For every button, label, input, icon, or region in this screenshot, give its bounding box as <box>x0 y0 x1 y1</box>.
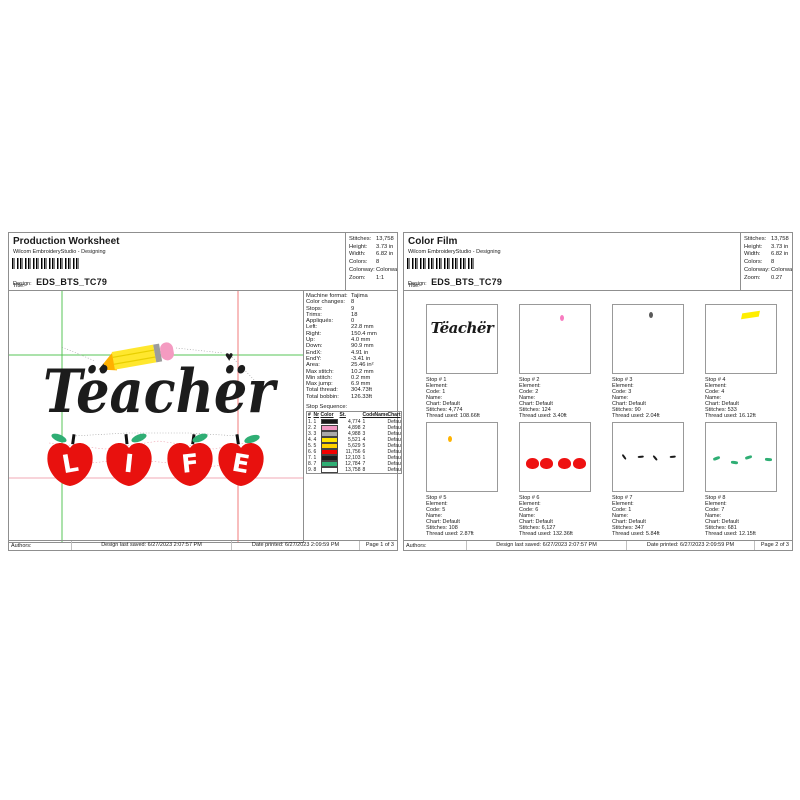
design-name-line: Design: EDS_BTS_TC79 <box>408 272 502 290</box>
stem-mark-mini <box>652 455 657 460</box>
stat-label: Width: <box>744 251 771 259</box>
production-worksheet-page: Production Worksheet Wilcom EmbroiderySt… <box>8 232 398 551</box>
color-film-footer: Authors:Design last saved: 6/27/2023 2:0… <box>404 540 792 550</box>
stop-chart: Default <box>387 425 402 431</box>
stat-value: 8 <box>771 259 774 267</box>
apple-mini <box>526 458 539 469</box>
film-cell: Stop # 7Element:Code: 1Name:Chart: Defau… <box>612 422 684 537</box>
machine-info-list: Machine format:TajimaColor changes:8Stop… <box>306 293 396 400</box>
stop-table-header: Color <box>320 412 339 419</box>
stat-value: 13,758 <box>376 236 394 244</box>
stat-label: Colors: <box>349 259 376 267</box>
machine-info-value: 18 <box>351 312 357 318</box>
stop-chart: Default <box>387 431 402 437</box>
stop-details: Stop # 7Element:Code: 1Name:Chart: Defau… <box>612 495 684 537</box>
design-name-value: EDS_BTS_TC79 <box>36 277 107 287</box>
stat-value: Colorway 1 <box>376 267 397 275</box>
stat-row: Stitches:13,758 <box>349 236 397 244</box>
stop-num: 2. <box>307 425 313 431</box>
teacher-word: Tëachër <box>43 357 279 427</box>
color-film-grid: TëachërStop # 1Element:Code: 1Name:Chart… <box>404 291 792 541</box>
barcode-image <box>407 258 475 269</box>
film-cell: Stop # 3Element:Code: 3Name:Chart: Defau… <box>612 304 684 419</box>
stop-color-cell <box>320 467 339 474</box>
stat-value: 6.82 in <box>376 251 393 259</box>
pencil-body-mini <box>741 311 760 320</box>
stop-chart: Default <box>387 467 402 474</box>
machine-info-value: 8 <box>351 299 354 305</box>
stat-row: Stitches:13,758 <box>744 236 792 244</box>
machine-info-value: 150.4 mm <box>351 331 377 337</box>
leaf-mark-mini <box>765 458 772 461</box>
worksheet-footer: Authors:Design last saved: 6/27/2023 2:0… <box>9 540 397 550</box>
stitch-dot <box>560 315 564 321</box>
leaf-mark-mini <box>744 455 751 459</box>
stop-table-header-row: #NrColorSt.CodeNameChart <box>307 412 402 419</box>
stop-num: 1. <box>307 419 313 425</box>
stop-detail-line: Thread used: 108.66ft <box>426 413 498 419</box>
stop-detail-line: Thread used: 5.84ft <box>612 531 684 537</box>
stop-num: 3. <box>307 431 313 437</box>
worksheet-header: Production Worksheet Wilcom EmbroiderySt… <box>9 233 397 291</box>
film-cell: Stop # 4Element:Code: 4Name:Chart: Defau… <box>705 304 777 419</box>
stop-thumbnail <box>426 422 498 492</box>
stop-num: 9. <box>307 467 313 474</box>
title-label: Title: <box>408 283 420 289</box>
mini-teacher-word: Tëachër <box>427 319 497 337</box>
machine-info-value: 9 <box>351 306 354 312</box>
stop-details: Stop # 6Element:Code: 6Name:Chart: Defau… <box>519 495 591 537</box>
apple-mini <box>558 458 571 469</box>
stop-detail-line: Thread used: 2.87ft <box>426 531 498 537</box>
stat-row: Zoom:0.27 <box>744 275 792 283</box>
machine-info-value: 304.73ft <box>351 387 372 393</box>
stat-label: Zoom: <box>744 275 771 283</box>
stat-value: 8 <box>376 259 379 267</box>
stem-mark-mini <box>670 456 676 458</box>
thread-color-swatch <box>321 461 338 467</box>
barcode-image <box>12 258 80 269</box>
stop-chart: Default <box>387 419 402 425</box>
stat-value: 0.27 <box>771 275 782 283</box>
stop-detail-line: Thread used: 3.40ft <box>519 413 591 419</box>
thread-color-swatch <box>321 437 338 443</box>
embroidery-design-preview: ♥ Tëachër L I <box>9 291 303 542</box>
stop-table-header: Nr <box>313 412 320 419</box>
stop-thumbnail <box>705 304 777 374</box>
stat-row: Height:3.73 in <box>744 244 792 252</box>
film-cell: Stop # 8Element:Code: 7Name:Chart: Defau… <box>705 422 777 537</box>
machine-info-value: -3.41 in <box>351 356 370 362</box>
stop-thumbnail <box>519 304 591 374</box>
machine-info-value: Tajima <box>351 293 368 299</box>
stop-table-header: Code <box>362 412 374 419</box>
footer-last-saved: Design last saved: 6/27/2023 2:07:57 PM <box>71 541 231 550</box>
stem-mark-mini <box>638 455 644 457</box>
machine-info-row: Total bobbin:126.33ft <box>306 394 396 400</box>
stat-row: Width:6.82 in <box>349 251 397 259</box>
stop-thumbnail <box>612 422 684 492</box>
stop-details: Stop # 8Element:Code: 7Name:Chart: Defau… <box>705 495 777 537</box>
stop-details: Stop # 1Element:Code: 1Name:Chart: Defau… <box>426 377 498 419</box>
footer-date-printed: Date printed: 6/27/2023 2:09:59 PM <box>231 541 359 550</box>
machine-info-value: 126.33ft <box>351 394 372 400</box>
stop-details: Stop # 3Element:Code: 3Name:Chart: Defau… <box>612 377 684 419</box>
stat-label: Height: <box>744 244 771 252</box>
machine-info-value: 4.0 mm <box>351 337 370 343</box>
stat-row: Zoom:1:1 <box>349 275 397 283</box>
stop-detail-line: Thread used: 2.04ft <box>612 413 684 419</box>
stop-table-header: Chart <box>387 412 402 419</box>
machine-info-value: 4.91 in <box>351 350 368 356</box>
machine-info-value: 25.46 in² <box>351 362 374 368</box>
stat-value: 13,758 <box>771 236 789 244</box>
stat-row: Colorway:Colorway 1 <box>744 267 792 275</box>
stop-detail-line: Thread used: 12.15ft <box>705 531 777 537</box>
stop-sequence-label: Stop Sequence: <box>306 404 396 410</box>
thread-color-swatch <box>321 455 338 461</box>
stem-mark-mini <box>621 454 626 460</box>
page-title: Color Film <box>408 236 457 247</box>
stat-row: Colors:8 <box>744 259 792 267</box>
stat-value: 6.82 in <box>771 251 788 259</box>
stop-stitches: 13,758 <box>339 467 362 474</box>
stat-label: Stitches: <box>349 236 376 244</box>
stitch-dot <box>448 436 452 442</box>
design-stats-box: Stitches:13,758Height:3.73 inWidth:6.82 … <box>740 233 792 290</box>
app-subtitle: Wilcom EmbroideryStudio - Designing <box>13 249 106 255</box>
design-name-value: EDS_BTS_TC79 <box>431 277 502 287</box>
footer-authors: Authors: <box>9 543 71 549</box>
stop-code: 8 <box>362 467 374 474</box>
color-film-page: Color Film Wilcom EmbroideryStudio - Des… <box>403 232 793 551</box>
stat-value: 3.73 in <box>771 244 788 252</box>
footer-last-saved: Design last saved: 6/27/2023 2:07:57 PM <box>466 541 626 550</box>
film-cell: Stop # 2Element:Code: 2Name:Chart: Defau… <box>519 304 591 419</box>
stat-label: Colorway: <box>744 267 771 275</box>
footer-page-number: Page 2 of 3 <box>754 541 792 550</box>
footer-page-number: Page 1 of 3 <box>359 541 397 550</box>
stat-label: Colorway: <box>349 267 376 275</box>
stop-detail-line: Thread used: 16.12ft <box>705 413 777 419</box>
thread-color-swatch <box>321 419 338 425</box>
machine-info-value: 0 <box>351 318 354 324</box>
thread-color-swatch <box>321 425 338 431</box>
stop-details: Stop # 5Element:Code: 5Name:Chart: Defau… <box>426 495 498 537</box>
film-cell: Stop # 6Element:Code: 6Name:Chart: Defau… <box>519 422 591 537</box>
machine-info-value: 22.8 mm <box>351 324 374 330</box>
stop-sequence-table: #NrColorSt.CodeNameChart1.14,7741Default… <box>306 411 402 474</box>
leaf-mark-mini <box>713 456 720 461</box>
stop-thumbnail: Tëachër <box>426 304 498 374</box>
thread-color-swatch <box>321 449 338 455</box>
stat-value: 3.73 in <box>376 244 393 252</box>
design-name-line: Design: EDS_BTS_TC79 <box>13 272 107 290</box>
stop-details: Stop # 2Element:Code: 2Name:Chart: Defau… <box>519 377 591 419</box>
leaf-mark-mini <box>731 461 738 464</box>
stop-thumbnail <box>519 422 591 492</box>
stat-value: Colorway 1 <box>771 267 792 275</box>
color-film-header: Color Film Wilcom EmbroideryStudio - Des… <box>404 233 792 291</box>
stat-label: Width: <box>349 251 376 259</box>
machine-info-value: 0.2 mm <box>351 375 370 381</box>
film-cell: Stop # 5Element:Code: 5Name:Chart: Defau… <box>426 422 498 537</box>
stop-table-header: St. <box>339 412 362 419</box>
machine-info-panel: Machine format:TajimaColor changes:8Stop… <box>304 291 397 541</box>
stat-row: Width:6.82 in <box>744 251 792 259</box>
stop-table-header: Name <box>374 412 387 419</box>
stat-row: Colorway:Colorway 1 <box>349 267 397 275</box>
stat-row: Colors:8 <box>349 259 397 267</box>
machine-info-value: 10.2 mm <box>351 369 374 375</box>
stop-detail-line: Thread used: 132.36ft <box>519 531 591 537</box>
design-stats-box: Stitches:13,758Height:3.73 inWidth:6.82 … <box>345 233 397 290</box>
footer-date-printed: Date printed: 6/27/2023 2:09:59 PM <box>626 541 754 550</box>
stop-nr: 8 <box>313 467 320 474</box>
machine-info-label: Total bobbin: <box>306 394 351 400</box>
machine-info-value: 90.9 mm <box>351 343 374 349</box>
stat-value: 1:1 <box>376 275 384 283</box>
app-subtitle: Wilcom EmbroideryStudio - Designing <box>408 249 501 255</box>
stat-row: Height:3.73 in <box>349 244 397 252</box>
apple-mini <box>573 458 586 469</box>
film-cell: TëachërStop # 1Element:Code: 1Name:Chart… <box>426 304 498 419</box>
footer-authors: Authors: <box>404 543 466 549</box>
stat-label: Height: <box>349 244 376 252</box>
stop-table-row: 9.813,7588Default <box>307 467 402 474</box>
design-preview-area: ♥ Tëachër L I <box>9 291 304 543</box>
page-title: Production Worksheet <box>13 236 120 247</box>
stop-thumbnail <box>612 304 684 374</box>
stat-label: Zoom: <box>349 275 376 283</box>
title-label: Title: <box>13 283 25 289</box>
machine-info-value: 6.9 mm <box>351 381 370 387</box>
thread-color-swatch <box>321 443 338 449</box>
stop-thumbnail <box>705 422 777 492</box>
letter-F: F <box>180 448 200 479</box>
stop-details: Stop # 4Element:Code: 4Name:Chart: Defau… <box>705 377 777 419</box>
thread-color-swatch <box>321 431 338 437</box>
thread-color-swatch <box>321 467 338 473</box>
stop-name <box>374 467 387 474</box>
apple-mini <box>540 458 553 469</box>
stat-label: Colors: <box>744 259 771 267</box>
print-preview-canvas: Production Worksheet Wilcom EmbroiderySt… <box>0 0 800 800</box>
stitch-dot <box>649 312 653 318</box>
stat-label: Stitches: <box>744 236 771 244</box>
